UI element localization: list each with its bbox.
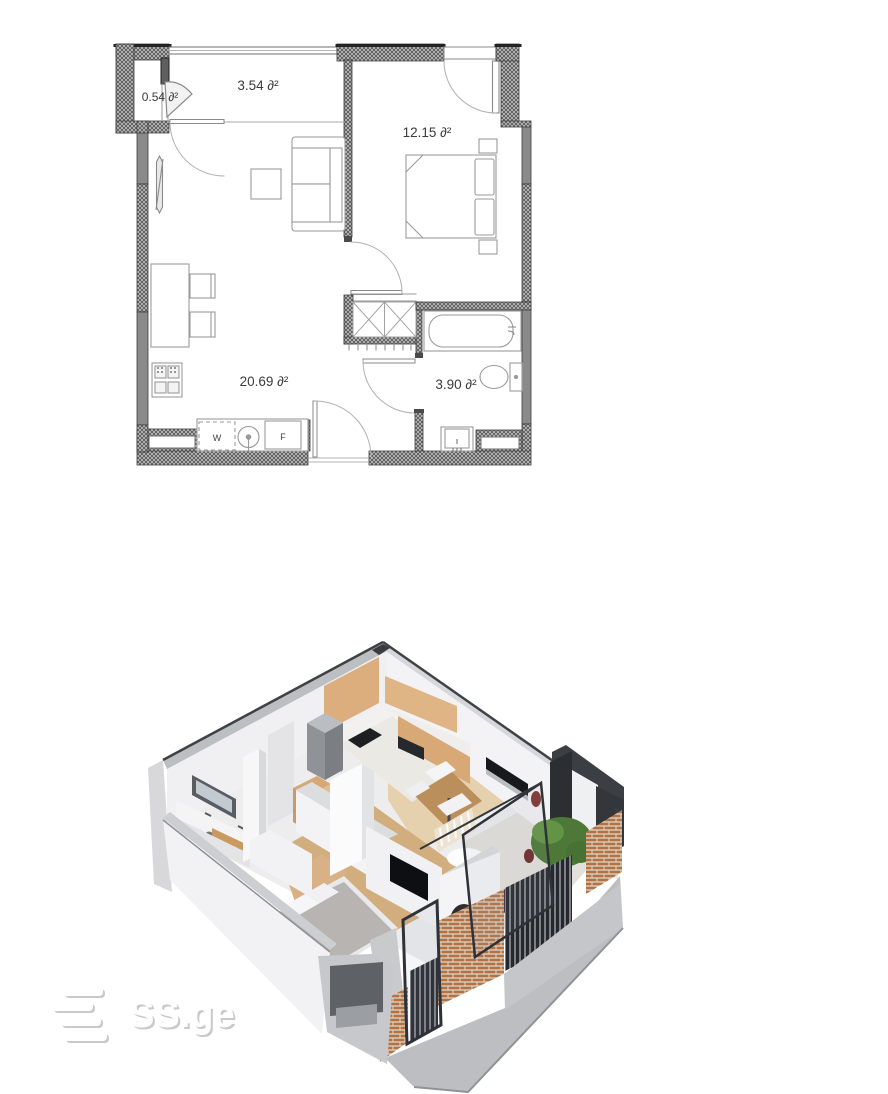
- svg-text:3.90 ∂²: 3.90 ∂²: [435, 377, 477, 392]
- svg-text:SS.ge: SS.ge: [129, 994, 235, 1036]
- svg-text:W: W: [213, 433, 222, 443]
- svg-text:3.54 ∂²: 3.54 ∂²: [237, 78, 279, 93]
- svg-text:20.69 ∂²: 20.69 ∂²: [240, 374, 289, 389]
- svg-text:F: F: [280, 432, 286, 442]
- svg-text:0.54 ∂²: 0.54 ∂²: [142, 90, 179, 104]
- svg-text:12.15 ∂²: 12.15 ∂²: [403, 125, 452, 140]
